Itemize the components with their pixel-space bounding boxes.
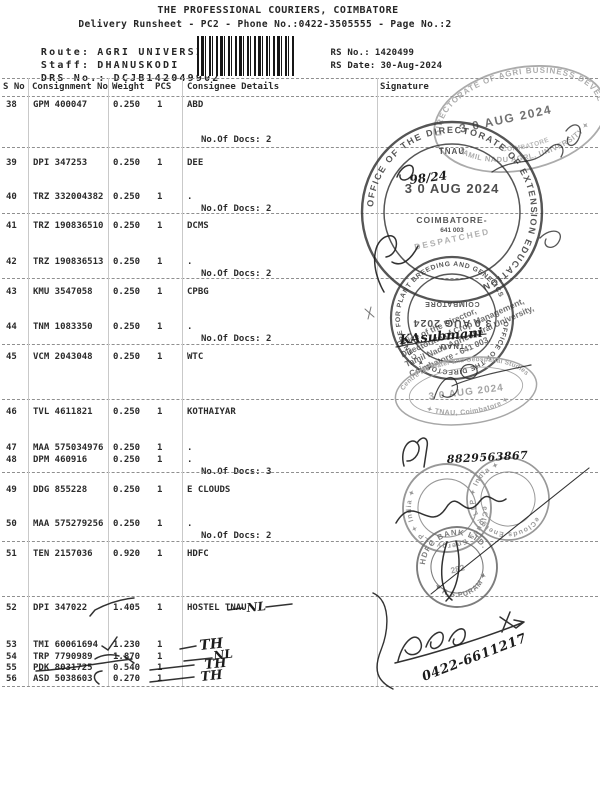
row-55-cn: PDK 8031725 bbox=[33, 663, 93, 673]
dashed-separator bbox=[2, 78, 598, 79]
row-50-consignee: . bbox=[187, 519, 192, 529]
row-51-pcs: 1 bbox=[157, 549, 162, 559]
row-39-pcs: 1 bbox=[157, 158, 162, 168]
row-38-cn: GPM 400047 bbox=[33, 100, 87, 110]
row-49-cn: DDG 855228 bbox=[33, 485, 87, 495]
col-header-pcs: PCS bbox=[155, 82, 171, 92]
row-45-wt: 0.250 bbox=[113, 352, 140, 362]
row-43-wt: 0.250 bbox=[113, 287, 140, 297]
stamp-office-of-director: OFFICE OF THE DIRECTOR ✦ CENTRE FOR PLAN… bbox=[391, 257, 513, 379]
stamp-director-city: COIMBATORE bbox=[424, 300, 479, 307]
stamp-despatched-text: DESPATCHED bbox=[413, 226, 491, 252]
col-header-consignment: Consignment No bbox=[32, 82, 108, 92]
row-45-pcs: 1 bbox=[157, 352, 162, 362]
row-47-pcs: 1 bbox=[157, 443, 162, 453]
row-53-wt: 1.230 bbox=[113, 640, 140, 650]
row-44-wt: 0.250 bbox=[113, 322, 140, 332]
col-header-sno: S No bbox=[3, 82, 25, 92]
signature-bottom-loops bbox=[398, 629, 465, 661]
stamp-eclouds1-ring-text: eClouds Energy LLP ✦ India ✦ bbox=[400, 474, 497, 558]
row-55-sno: 55 bbox=[6, 663, 17, 673]
hw-mobile-number: 8829563867 bbox=[446, 449, 528, 466]
dashed-separator bbox=[2, 278, 598, 279]
hw-extension-note: 98/24 bbox=[409, 168, 448, 187]
dashed-separator bbox=[2, 147, 598, 148]
svg-text:COIMBATORE: COIMBATORE bbox=[501, 136, 551, 155]
row-42-pcs: 1 bbox=[157, 257, 162, 267]
row-41-wt: 0.250 bbox=[113, 221, 140, 231]
stamp-studies-outer-oval bbox=[392, 350, 541, 433]
row-44-consignee: . bbox=[187, 322, 192, 332]
svg-text:Centre for Water and Geospatia: Centre for Water and Geospatial Studies bbox=[397, 349, 531, 392]
stamp-crop-line-2: Directorate of Crop Management, bbox=[399, 296, 526, 360]
row-52-cn: DPI 347022 bbox=[33, 603, 87, 613]
stamp-director-inner-ring bbox=[408, 274, 496, 362]
row-47-consignee: . bbox=[187, 443, 192, 453]
stamp-eclouds2-outer bbox=[454, 445, 563, 554]
stamp-agri-arc-inner: COIMBATORE bbox=[501, 136, 551, 155]
stamp-extension-city: COIMBATORE- bbox=[416, 215, 487, 225]
row-56-pcs: 1 bbox=[157, 674, 162, 684]
row-41-cn: TRZ 190836510 bbox=[33, 221, 103, 231]
stamp-agri-business-dev: DIRECTORATE OF AGRI BUSINESS DEVEL TAMIL… bbox=[424, 51, 600, 187]
hw-phone-number: 0422-6611217 bbox=[420, 631, 529, 685]
row-48-pcs: 1 bbox=[157, 455, 162, 465]
stamp-hdfc-inner bbox=[425, 535, 489, 599]
row-42-wt: 0.250 bbox=[113, 257, 140, 267]
runsheet-subtitle: Delivery Runsheet - PC2 - Phone No.:0422… bbox=[0, 19, 530, 30]
row-44-pcs: 1 bbox=[157, 322, 162, 332]
dashed-separator bbox=[2, 213, 598, 214]
row-40-wt: 0.250 bbox=[113, 192, 140, 202]
row-46-consignee: KOTHAIYAR bbox=[187, 407, 236, 417]
row-49-sno: 49 bbox=[6, 485, 17, 495]
svg-text:OFFICE OF THE DIRECTORATE OF E: OFFICE OF THE DIRECTORATE OF EXTENSION E… bbox=[365, 125, 539, 293]
row-46-sno: 46 bbox=[6, 407, 17, 417]
row-46-wt: 0.250 bbox=[113, 407, 140, 417]
stamp-studies-arc-top: Centre for Water and Geospatial Studies bbox=[397, 349, 531, 392]
stamp-agri-oval bbox=[424, 51, 600, 187]
row-41-sno: 41 bbox=[6, 221, 17, 231]
row-50-docs: No.Of Docs: 2 bbox=[201, 531, 271, 541]
stamp-extension-inner-ring bbox=[384, 144, 520, 280]
row-43-sno: 43 bbox=[6, 287, 17, 297]
row-45-sno: 45 bbox=[6, 352, 17, 362]
stamp-agri-arc-top: DIRECTORATE OF AGRI BUSINESS DEVEL bbox=[424, 51, 600, 137]
hw-mark-row52: NL bbox=[245, 599, 267, 615]
row-42-cn: TRZ 190836513 bbox=[33, 257, 103, 267]
signature-director-underline bbox=[396, 334, 486, 347]
stamp-extension-education: OFFICE OF THE DIRECTORATE OF EXTENSION E… bbox=[362, 122, 542, 302]
svg-text:HDFC BANK LTD.: HDFC BANK LTD. bbox=[411, 520, 490, 568]
svg-text:DIRECTORATE OF AGRI BUSINESS D: DIRECTORATE OF AGRI BUSINESS DEVEL bbox=[424, 51, 600, 137]
row-46-pcs: 1 bbox=[157, 407, 162, 417]
row-55-pcs: 1 bbox=[157, 663, 162, 673]
stamp-eclouds-2: eClouds Energy LLP ✦ India ✦ bbox=[454, 445, 563, 554]
row-50-pcs: 1 bbox=[157, 519, 162, 529]
dashed-separator bbox=[2, 472, 598, 473]
row-49-pcs: 1 bbox=[157, 485, 162, 495]
row-52-consignee: HOSTEL TNAU bbox=[187, 603, 247, 613]
row-56-wt: 0.270 bbox=[113, 674, 140, 684]
dashed-separator bbox=[2, 399, 598, 400]
row-48-cn: DPM 460916 bbox=[33, 455, 87, 465]
scribble-extension-note bbox=[397, 165, 413, 180]
ink-mark-margin bbox=[365, 307, 374, 319]
dashed-separator bbox=[2, 596, 598, 597]
row-54-sno: 54 bbox=[6, 652, 17, 662]
row-48-wt: 0.250 bbox=[113, 455, 140, 465]
stamp-hdfc-arc-bottom: ✦ R.S.PURAM ✦ bbox=[432, 569, 494, 606]
column-line bbox=[108, 78, 109, 686]
tick-row56 bbox=[94, 671, 102, 684]
col-header-signature: Signature bbox=[380, 82, 429, 92]
stamp-director-outer-ring bbox=[391, 257, 513, 379]
row-54-pcs: 1 bbox=[157, 652, 162, 662]
row-47-sno: 47 bbox=[6, 443, 17, 453]
row-53-sno: 53 bbox=[6, 640, 17, 650]
row-44-sno: 44 bbox=[6, 322, 17, 332]
delivery-runsheet-page: THE PROFESSIONAL COURIERS, COIMBATORE De… bbox=[0, 0, 600, 800]
rs-date-line: RS Date:30-Aug-2024 bbox=[308, 51, 442, 81]
stamp-hdfc-arc-top: HDFC BANK LTD. bbox=[411, 520, 490, 568]
signature-row42 bbox=[375, 236, 418, 292]
row-50-cn: MAA 575279256 bbox=[33, 519, 103, 529]
hw-mark-row56: TH bbox=[200, 668, 224, 685]
stamp-eclouds2-inner bbox=[472, 463, 544, 535]
row-39-wt: 0.250 bbox=[113, 158, 140, 168]
brace-signature-column bbox=[373, 593, 393, 689]
row-39-cn: DPI 347253 bbox=[33, 158, 87, 168]
stamp-extension-pin: 641 003 bbox=[440, 227, 464, 234]
row-40-pcs: 1 bbox=[157, 192, 162, 202]
stamp-hdfc-bank: HDFC BANK LTD. ✦ R.S.PURAM ✦ 282 bbox=[408, 518, 506, 616]
stamp-studies-oval: Centre for Water and Geospatial Studies … bbox=[391, 349, 540, 433]
rs-date-label: RS Date: bbox=[330, 61, 375, 71]
row-43-consignee: CPBG bbox=[187, 287, 209, 297]
row-48-consignee: . bbox=[187, 455, 192, 465]
dash-row54 bbox=[184, 658, 212, 661]
pen-line-hdfc bbox=[431, 468, 589, 594]
hw-mark-row54: NL bbox=[211, 646, 233, 663]
row-53-pcs: 1 bbox=[157, 640, 162, 650]
row-49-wt: 0.250 bbox=[113, 485, 140, 495]
row-51-wt: 0.920 bbox=[113, 549, 140, 559]
stamp-extension-date: 3 0 AUG 2024 bbox=[405, 181, 500, 196]
scribble-agri-stamp bbox=[492, 125, 580, 247]
col-header-consignee: Consignee Details bbox=[187, 82, 279, 92]
stamp-crop-line-4: Coimbatore - 641 003. bbox=[408, 334, 492, 379]
stamp-eclouds1-inner bbox=[413, 474, 480, 541]
column-line bbox=[377, 78, 378, 686]
signature-row48 bbox=[403, 438, 428, 467]
stamp-extension-tnau: TNAU bbox=[439, 147, 465, 156]
row-50-wt: 0.250 bbox=[113, 519, 140, 529]
row-38-sno: 38 bbox=[6, 100, 17, 110]
handwritten-text: 98/24 KAsubmani 8829563867 0422-6611217 … bbox=[199, 168, 529, 685]
hw-mark-row55: TH bbox=[204, 656, 228, 673]
column-line bbox=[28, 78, 29, 686]
dashed-separator bbox=[2, 686, 598, 687]
row-51-sno: 51 bbox=[6, 549, 17, 559]
row-54-wt: 1.870 bbox=[113, 652, 140, 662]
scribble-studies-stamp bbox=[434, 364, 531, 399]
row-44-docs: No.Of Docs: 2 bbox=[201, 334, 271, 344]
stamp-extension-outer-ring bbox=[362, 122, 542, 302]
stamp-director-date: 3 0 AUG 2024 bbox=[413, 317, 492, 329]
row-43-cn: KMU 3547058 bbox=[33, 287, 93, 297]
stamp-crop-line-3: Tamil Nadu Agricultural University, bbox=[403, 303, 535, 369]
row-38-consignee: ABD bbox=[187, 100, 203, 110]
row-50-sno: 50 bbox=[6, 519, 17, 529]
col-header-weight: Weight bbox=[112, 82, 145, 92]
row-56-sno: 56 bbox=[6, 674, 17, 684]
row-42-sno: 42 bbox=[6, 257, 17, 267]
row-38-wt: 0.250 bbox=[113, 100, 140, 110]
svg-text:eClouds Energy LLP ✦ India ✦: eClouds Energy LLP ✦ India ✦ bbox=[456, 455, 555, 550]
stamp-studies-inner-oval bbox=[407, 361, 526, 421]
signature-eclouds bbox=[396, 496, 506, 523]
stamp-crop-office-address: Office of the Director, Directorate of C… bbox=[395, 284, 540, 379]
row-48-sno: 48 bbox=[6, 455, 17, 465]
row-47-cn: MAA 575034976 bbox=[33, 443, 103, 453]
row-41-consignee: DCMS bbox=[187, 221, 209, 231]
dashed-separator bbox=[2, 96, 598, 97]
row-45-consignee: WTC bbox=[187, 352, 203, 362]
row-43-pcs: 1 bbox=[157, 287, 162, 297]
row-42-consignee: . bbox=[187, 257, 192, 267]
stamp-eclouds2-ring-text: eClouds Energy LLP ✦ India ✦ bbox=[456, 455, 555, 550]
row-40-sno: 40 bbox=[6, 192, 17, 202]
row-51-cn: TEN 2157036 bbox=[33, 549, 93, 559]
row-40-cn: TRZ 332004382 bbox=[33, 192, 103, 202]
signature-bottom-flourish bbox=[395, 612, 524, 663]
row-52-wt: 1.405 bbox=[113, 603, 140, 613]
row-49-consignee: E CLOUDS bbox=[187, 485, 230, 495]
svg-text:✦ R.S.PURAM ✦: ✦ R.S.PURAM ✦ bbox=[432, 569, 494, 606]
row-38-pcs: 1 bbox=[157, 100, 162, 110]
stamp-extension-ring-text: OFFICE OF THE DIRECTORATE OF EXTENSION E… bbox=[365, 125, 539, 293]
dashed-separator bbox=[2, 541, 598, 542]
row-52-pcs: 1 bbox=[157, 603, 162, 613]
row-44-cn: TNM 1083350 bbox=[33, 322, 93, 332]
row-55-wt: 0.540 bbox=[113, 663, 140, 673]
stamp-agri-date: 3 0 AUG 2024 bbox=[458, 102, 553, 135]
row-38-docs: No.Of Docs: 2 bbox=[201, 135, 271, 145]
svg-text:eClouds Energy LLP ✦ India ✦: eClouds Energy LLP ✦ India ✦ bbox=[400, 474, 497, 558]
row-53-cn: TMI 60061694 bbox=[33, 640, 98, 650]
stamp-hdfc-code: 282 bbox=[449, 562, 466, 575]
signature-hdfc bbox=[442, 541, 459, 601]
company-title: THE PROFESSIONAL COURIERS, COIMBATORE bbox=[0, 5, 556, 16]
hw-mark-row53: TH bbox=[199, 636, 225, 654]
barcode bbox=[197, 36, 294, 76]
row-40-consignee: . bbox=[187, 192, 192, 202]
row-39-sno: 39 bbox=[6, 158, 17, 168]
row-46-cn: TVL 4611821 bbox=[33, 407, 93, 417]
row-45-cn: VCM 2043048 bbox=[33, 352, 93, 362]
stamp-hdfc-outer bbox=[408, 518, 506, 616]
row-52-sno: 52 bbox=[6, 603, 17, 613]
rs-date-value: 30-Aug-2024 bbox=[380, 61, 442, 71]
row-47-wt: 0.250 bbox=[113, 443, 140, 453]
dashed-separator bbox=[2, 344, 598, 345]
row-56-cn: ASD 5038603 bbox=[33, 674, 93, 684]
column-line bbox=[182, 78, 183, 686]
row-54-cn: TRP 7790989 bbox=[33, 652, 93, 662]
row-51-consignee: HDFC bbox=[187, 549, 209, 559]
row-39-consignee: DEE bbox=[187, 158, 203, 168]
row-41-pcs: 1 bbox=[157, 221, 162, 231]
